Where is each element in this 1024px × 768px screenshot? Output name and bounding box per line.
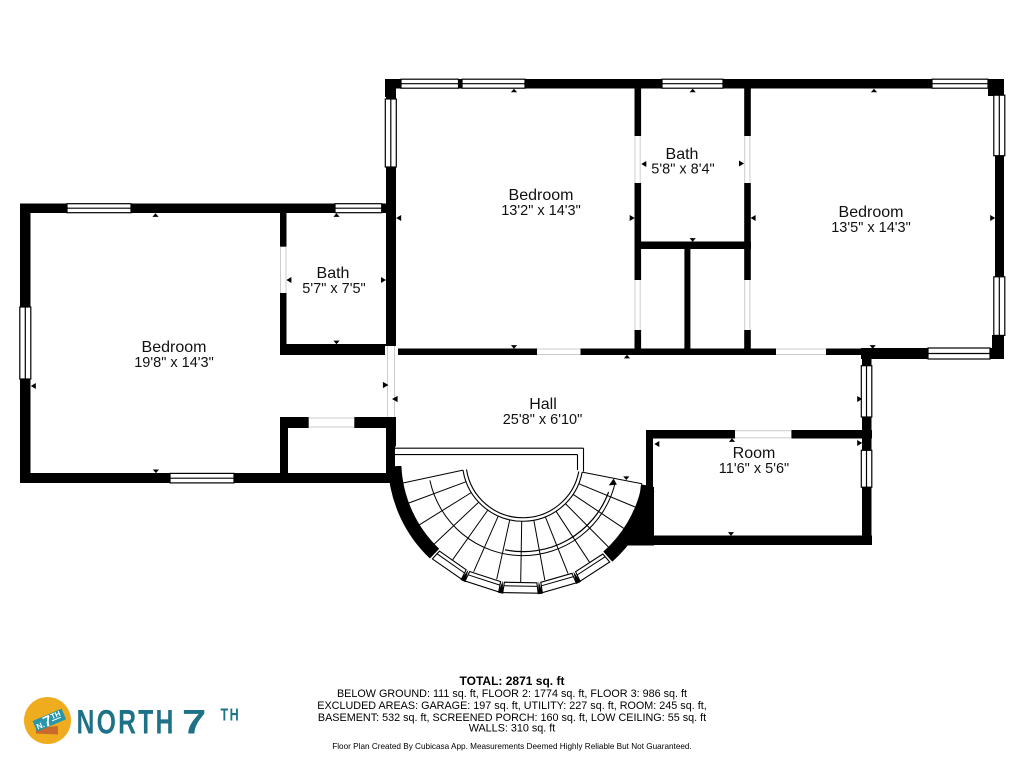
svg-text:Bath: Bath (317, 265, 350, 282)
svg-text:5'7" x 7'5": 5'7" x 7'5" (302, 281, 365, 297)
svg-text:Bath: Bath (666, 146, 699, 163)
svg-text:Room: Room (733, 445, 776, 462)
svg-text:11'6" x 5'6": 11'6" x 5'6" (719, 461, 789, 477)
svg-text:TH: TH (221, 706, 241, 726)
svg-text:NORTH: NORTH (77, 704, 176, 742)
svg-text:19'8" x 14'3": 19'8" x 14'3" (134, 355, 214, 371)
svg-text:EXCLUDED AREAS: GARAGE: 197 sq: EXCLUDED AREAS: GARAGE: 197 sq. ft, UTIL… (317, 700, 706, 712)
svg-text:13'2" x 14'3": 13'2" x 14'3" (501, 203, 581, 219)
svg-text:5'8" x 8'4": 5'8" x 8'4" (651, 162, 714, 178)
svg-text:13'5" x 14'3": 13'5" x 14'3" (831, 220, 911, 236)
svg-text:7: 7 (182, 703, 206, 742)
svg-text:25'8" x 6'10": 25'8" x 6'10" (503, 412, 583, 428)
svg-text:WALLS: 310 sq. ft: WALLS: 310 sq. ft (469, 723, 556, 735)
svg-text:Hall: Hall (529, 396, 557, 413)
svg-text:TOTAL: 2871 sq. ft: TOTAL: 2871 sq. ft (460, 674, 565, 688)
svg-text:Floor Plan Created By Cubicasa: Floor Plan Created By Cubicasa App. Meas… (332, 742, 692, 751)
svg-text:Bedroom: Bedroom (509, 187, 574, 204)
svg-text:BELOW GROUND: 111 sq. ft, FLOO: BELOW GROUND: 111 sq. ft, FLOOR 2: 1774 … (337, 688, 687, 700)
svg-text:Bedroom: Bedroom (839, 204, 904, 221)
svg-text:Bedroom: Bedroom (142, 339, 207, 356)
